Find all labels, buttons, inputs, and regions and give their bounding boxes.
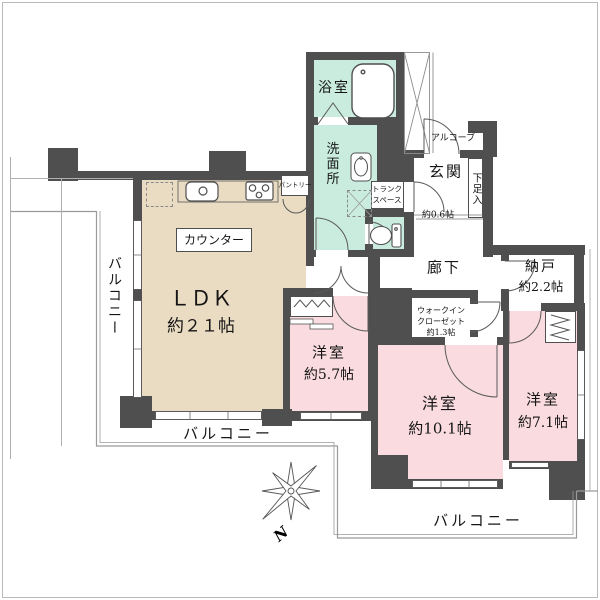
wic-label-2: クローゼット bbox=[417, 318, 465, 326]
column bbox=[209, 151, 246, 180]
balcony-label-bottom-left: バルコニー bbox=[183, 427, 273, 442]
room-label-storage: 納戸 bbox=[525, 260, 557, 274]
floor-plan: ＬＤＫ 約２１帖 カウンター パントリー 浴室 洗面所 トランク スペース 約0… bbox=[0, 0, 600, 600]
room-label-genkan: 玄関 bbox=[429, 165, 463, 180]
room-ldk-fill-lower bbox=[142, 296, 283, 411]
trunk-size: 約0.6帖 bbox=[422, 212, 454, 221]
alcove-label: アルコーブ bbox=[431, 135, 475, 144]
room-size-bedroom3: 約7.1帖 bbox=[518, 416, 568, 430]
window bbox=[133, 220, 142, 290]
refrigerator-space bbox=[146, 182, 173, 207]
window bbox=[412, 480, 498, 488]
room-label-washroom: 洗面所 bbox=[325, 142, 338, 187]
room-label-bedroom2: 洋室 bbox=[422, 396, 458, 412]
window bbox=[133, 300, 142, 398]
room-label-bath: 浴室 bbox=[318, 81, 350, 95]
wic-label-1: ウォークイン bbox=[417, 307, 465, 315]
window bbox=[511, 462, 549, 468]
pantry-label: パントリー bbox=[279, 182, 312, 189]
balcony-label-left: バルコニー bbox=[107, 256, 121, 336]
window bbox=[300, 412, 362, 420]
balcony-label-bottom-right: バルコニー bbox=[433, 514, 523, 529]
bedroom1-closet bbox=[290, 296, 333, 317]
shoe-box-label: 下足入 bbox=[470, 173, 480, 206]
trunk-label-1: トランク bbox=[372, 185, 402, 193]
wic-label-3: 約1.3帖 bbox=[427, 329, 456, 337]
room-label-bedroom3: 洋室 bbox=[526, 393, 560, 408]
column bbox=[48, 148, 78, 181]
washing-machine-pan bbox=[347, 190, 372, 217]
room-size-bedroom1: 約5.7帖 bbox=[304, 368, 354, 382]
bedroom3-closet bbox=[545, 311, 576, 343]
room-label-bedroom1: 洋室 bbox=[312, 346, 346, 361]
column bbox=[549, 461, 585, 500]
column bbox=[371, 455, 408, 489]
room-label-corridor: 廊下 bbox=[427, 261, 461, 276]
trunk-label-2: スペース bbox=[372, 196, 401, 204]
window bbox=[577, 350, 585, 440]
room-size-storage: 約2.2帖 bbox=[519, 281, 564, 294]
counter-label: カウンター bbox=[184, 234, 244, 246]
room-size-ldk: 約２１帖 bbox=[167, 319, 235, 336]
room-size-bedroom2: 約10.1帖 bbox=[408, 422, 471, 437]
window bbox=[155, 411, 262, 420]
room-label-ldk: ＬＤＫ bbox=[170, 289, 233, 310]
